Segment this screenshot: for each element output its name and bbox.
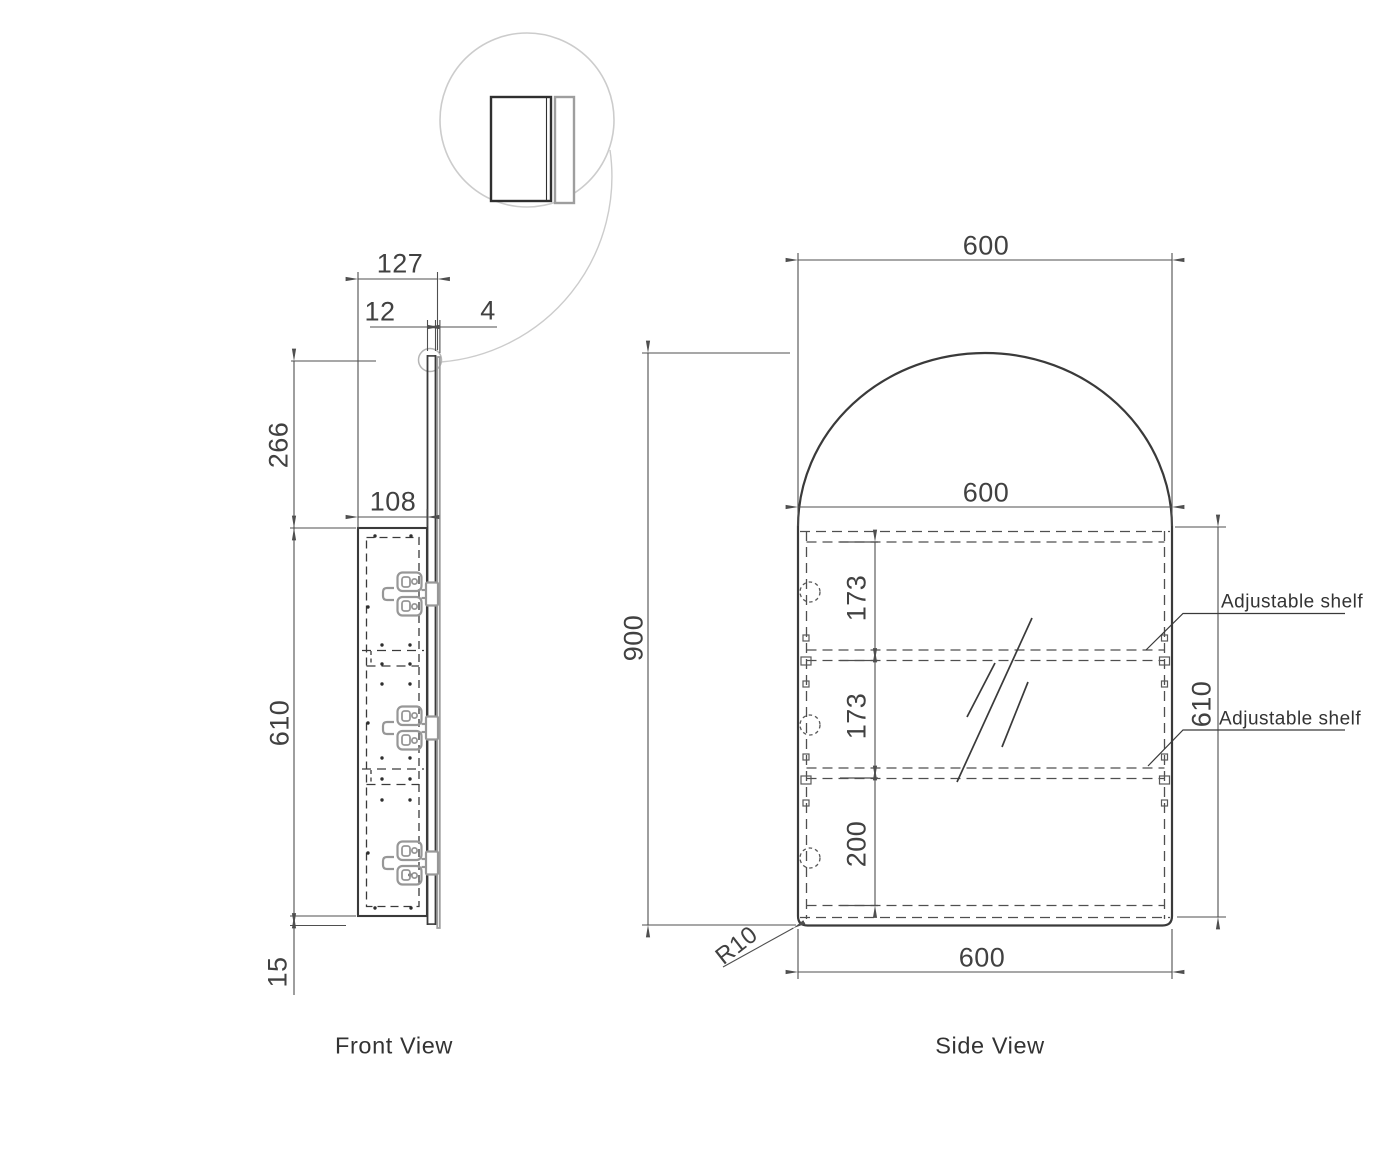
hinge-icon: [383, 842, 438, 885]
technical-drawing: 127 12 4 108 266 610 15 Front View 600 6…: [0, 0, 1400, 1159]
dim-cabinet-height: 610: [1189, 681, 1216, 728]
dim-top-width: 600: [963, 233, 1010, 260]
side-view-title: Side View: [935, 1034, 1044, 1058]
side-hinge-cups: [800, 582, 820, 868]
adjustable-shelf-label-1: Adjustable shelf: [1221, 593, 1363, 612]
dim-door-thickness: 12: [364, 299, 395, 326]
dim-shelf-space-top: 173: [844, 575, 871, 622]
front-hinges: [383, 573, 438, 885]
dim-top-offset: 266: [266, 422, 293, 469]
detail-bubble: [419, 33, 615, 372]
dim-inner-width: 600: [963, 480, 1010, 507]
dim-mirror-thickness: 4: [480, 298, 496, 325]
shelf-leader-lines: [1146, 614, 1345, 767]
front-view-title: Front View: [335, 1034, 453, 1058]
front-view-dimensions: [290, 272, 497, 995]
glass-symbol: [957, 618, 1032, 782]
hinge-icon: [383, 707, 438, 750]
dim-shelf-space-middle: 173: [844, 693, 871, 740]
detail-mirror-panel: [555, 97, 574, 203]
side-view-dimensions: [642, 253, 1345, 979]
front-mirror-strip: [437, 357, 440, 928]
drawing-linework: [0, 0, 1400, 1159]
dim-bottom-width: 600: [959, 945, 1006, 972]
dim-overall-height: 900: [621, 615, 648, 662]
front-door-panel: [428, 355, 436, 925]
detail-door-panel: [491, 97, 551, 201]
dim-bottom-overhang: 15: [265, 956, 292, 987]
hinge-icon: [383, 573, 438, 616]
dim-body-height: 610: [267, 700, 294, 747]
dim-body-depth: 108: [370, 489, 417, 516]
adjustable-shelf-label-2: Adjustable shelf: [1219, 710, 1361, 729]
dim-shelf-space-bottom: 200: [844, 821, 871, 868]
dim-overall-depth: 127: [377, 251, 424, 278]
